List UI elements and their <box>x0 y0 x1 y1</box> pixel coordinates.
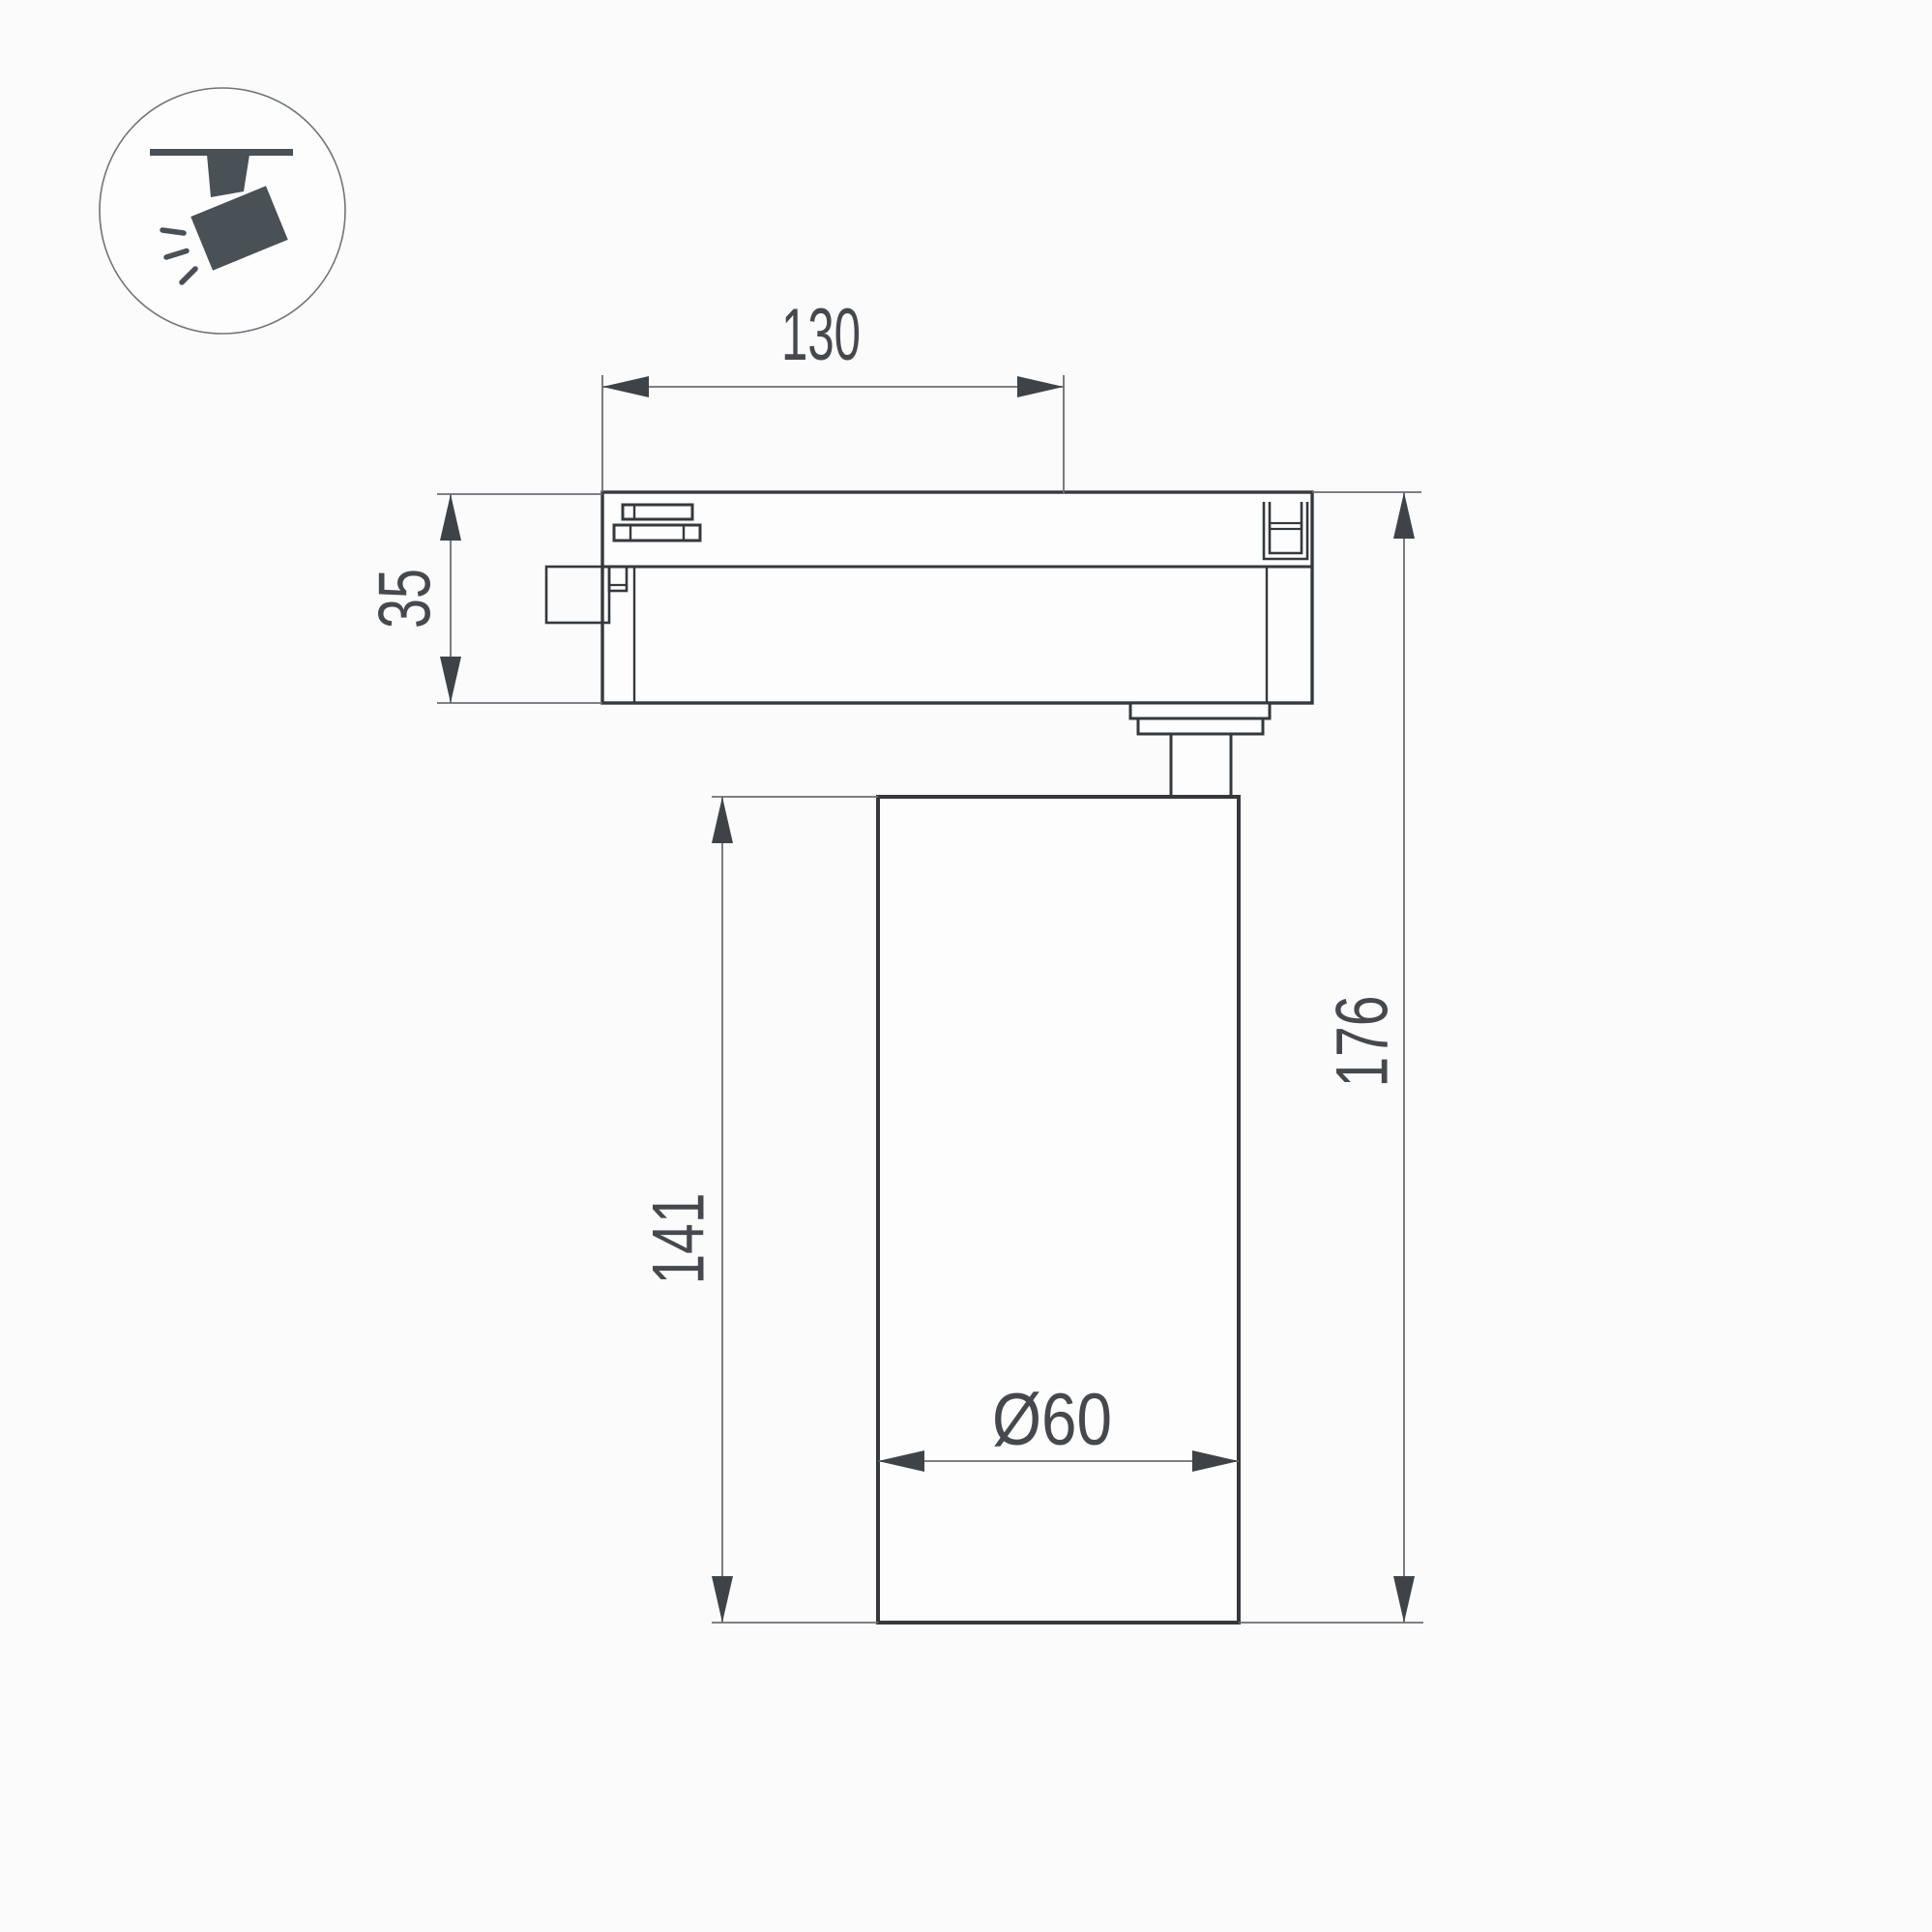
dim-35-arrow-down <box>440 657 461 703</box>
dim-60-label: Ø60 <box>992 1379 1112 1461</box>
adapter-outline <box>602 492 1312 703</box>
icon-mount-stem <box>207 155 249 197</box>
dim-130-arrow-left <box>602 376 649 397</box>
dim-176-label: 176 <box>1322 996 1404 1088</box>
stem <box>1171 734 1231 798</box>
dim-35-arrow-up <box>440 494 461 541</box>
icon-track-bar <box>150 149 293 156</box>
dim-141-arrow-down <box>712 1576 733 1623</box>
dim-35-label: 35 <box>365 569 447 629</box>
dim-130-label: 130 <box>781 294 861 376</box>
dim-141-label: 141 <box>638 1193 720 1285</box>
dim-141-arrow-up <box>712 797 733 843</box>
icon-badge <box>100 88 345 334</box>
dim-35: 35 <box>365 494 602 703</box>
dim-130-arrow-right <box>1017 376 1064 397</box>
dimension-drawing-svg: 130 35 141 176 <box>0 0 1932 1932</box>
lamp-body-outline <box>878 797 1239 1623</box>
drawing-canvas: 130 35 141 176 <box>0 0 1932 1932</box>
track-adapter <box>546 492 1312 798</box>
adapter-flange <box>1130 703 1270 734</box>
dim-141: 141 <box>638 797 878 1623</box>
dim-176-arrow-down <box>1393 1576 1415 1623</box>
dim-130: 130 <box>602 294 1064 493</box>
dim-176-arrow-up <box>1393 492 1415 539</box>
